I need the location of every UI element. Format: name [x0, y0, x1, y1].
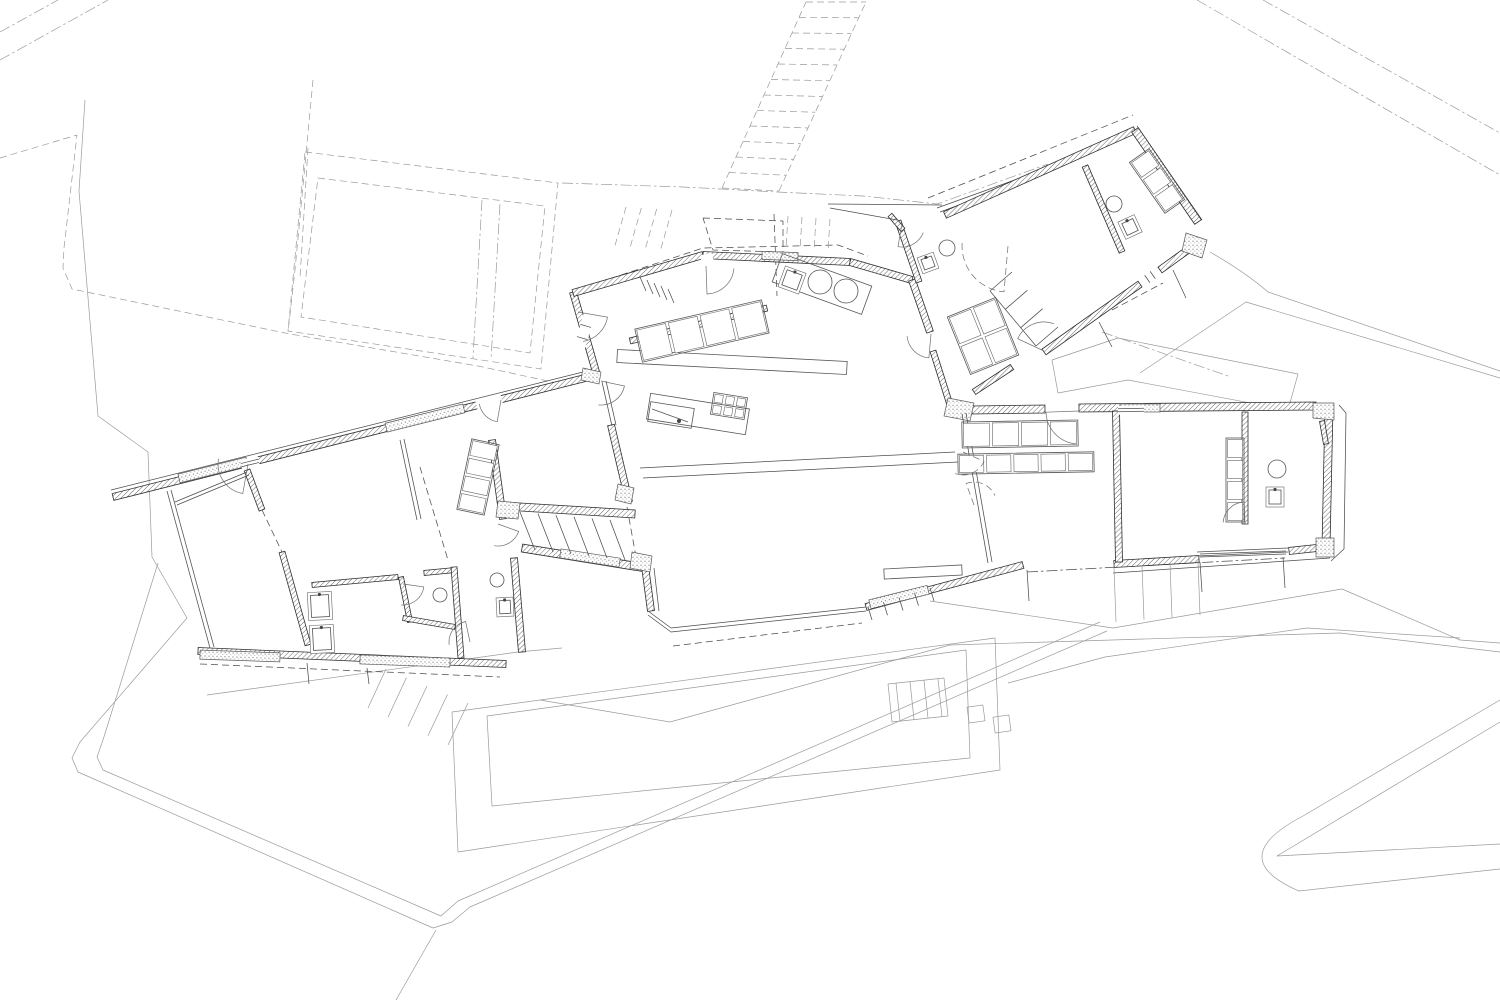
4: [896, 683, 900, 721]
13: [729, 173, 786, 176]
4: [814, 218, 816, 251]
basin: [496, 597, 514, 617]
wc-bowl: [1106, 196, 1122, 212]
basin: [917, 252, 939, 274]
wall-segment: [849, 259, 913, 284]
site-line: [1210, 252, 1500, 371]
4: [938, 679, 942, 717]
wall-segment: [930, 350, 953, 406]
site-line: [1262, 700, 1500, 891]
4: [924, 680, 928, 718]
cooktop-burner: [808, 270, 832, 294]
roof-line: [1331, 405, 1346, 561]
wall-block: [496, 501, 520, 519]
13: [771, 80, 830, 81]
roof-line: [1173, 270, 1186, 298]
13: [785, 49, 844, 50]
13: [757, 111, 815, 113]
roof-line: [420, 467, 448, 560]
glazing-line: [640, 452, 955, 468]
5: [654, 283, 660, 297]
wall-block: [615, 484, 634, 504]
glazing-line: [828, 204, 942, 205]
wall-segment: [504, 502, 635, 518]
wall-segment: [909, 279, 934, 333]
wall-segment: [312, 575, 398, 588]
site-line: [0, 0, 108, 60]
glazing-line: [404, 439, 421, 519]
glazing-line: [654, 568, 659, 611]
wall-block: [1313, 403, 1334, 420]
13: [792, 33, 852, 34]
site-line: [1140, 302, 1500, 378]
door-swing: [494, 524, 519, 546]
door-swing: [907, 334, 931, 358]
wall-block: [360, 655, 450, 667]
wall-segment: [572, 252, 704, 297]
roof-line: [673, 623, 862, 646]
wall-block: [560, 549, 621, 567]
wall-opening: [475, 394, 503, 410]
site-line: [1102, 332, 1228, 376]
4: [645, 209, 657, 251]
roof-line: [1027, 570, 1029, 601]
wc-bowl: [433, 588, 447, 602]
wc-bowl: [490, 573, 504, 587]
wall-segment: [1079, 402, 1316, 412]
6: [538, 514, 553, 552]
wall-segment: [244, 469, 265, 511]
wall-segment: [972, 405, 1045, 414]
site-line: [396, 930, 436, 1000]
4: [1142, 566, 1144, 620]
window: [1118, 405, 1144, 414]
site-line: [491, 204, 500, 360]
5: [448, 703, 468, 745]
wall-block: [1316, 538, 1334, 557]
site-line: [1277, 722, 1500, 856]
roof-line: [928, 115, 1133, 198]
windows-layer: [240, 253, 1286, 560]
site-line: [301, 178, 545, 353]
site-line: [993, 715, 1011, 733]
wall-block: [385, 404, 465, 432]
fixture: [652, 409, 688, 422]
basin: [1266, 487, 1284, 507]
site-line: [0, 0, 58, 32]
wall-block: [762, 251, 798, 260]
4: [1114, 568, 1116, 622]
wall-segment: [424, 568, 455, 576]
island-table: [648, 402, 695, 429]
5: [640, 277, 646, 291]
6: [574, 517, 589, 556]
site-line: [97, 563, 1100, 916]
site-line: [1052, 338, 1298, 410]
wall-segment: [1082, 165, 1125, 253]
basin: [307, 591, 332, 620]
utility-appliances: [947, 298, 1018, 375]
wall-segment: [403, 616, 456, 630]
roof-line: [111, 369, 595, 490]
fixture: [677, 419, 681, 423]
wall-block: [869, 585, 929, 608]
4: [614, 207, 626, 249]
wc-bowl: [939, 240, 955, 256]
door-swing: [966, 482, 995, 505]
wall-segment: [1113, 411, 1123, 562]
wall-segment: [279, 551, 311, 646]
glazing-line: [171, 490, 214, 647]
5: [408, 686, 427, 727]
wc-bowl: [1268, 460, 1286, 478]
planter: [884, 565, 962, 579]
closet-row: [958, 452, 1094, 474]
wall-segment: [451, 567, 464, 658]
kitchen-cabinets: [635, 300, 769, 362]
wall-block: [178, 457, 248, 483]
glazing-line: [400, 440, 417, 520]
glazing-line: [830, 208, 897, 220]
5: [647, 280, 653, 294]
13: [750, 126, 808, 128]
roof-line: [262, 510, 282, 552]
floor-plan-page: [0, 0, 1500, 1000]
site-line: [540, 633, 1500, 722]
13: [722, 188, 779, 191]
wall-segment: [1242, 412, 1248, 524]
5: [368, 669, 386, 708]
floor-plan-canvas: [0, 0, 1500, 1000]
closet-row: [962, 420, 1078, 448]
door-swing: [962, 242, 1008, 292]
13: [743, 142, 801, 144]
4: [1005, 290, 1027, 309]
4: [1198, 561, 1200, 615]
basin: [1118, 215, 1142, 240]
site-line: [0, 135, 562, 384]
wall-segment: [888, 213, 905, 231]
site-line: [300, 148, 308, 278]
roof-line: [367, 668, 369, 684]
wall-segment: [642, 566, 655, 612]
door-swing: [706, 266, 734, 294]
glazing-line: [643, 462, 958, 478]
4: [786, 216, 788, 249]
site-line: [487, 650, 970, 806]
site-line: [473, 200, 482, 358]
wall-segment: [1114, 556, 1199, 568]
4: [910, 682, 914, 720]
site-line: [288, 80, 313, 332]
kitchen-sink: [778, 266, 806, 294]
13: [764, 95, 823, 97]
6: [610, 520, 625, 560]
wall-block: [944, 398, 974, 421]
site-line: [452, 638, 1000, 852]
glazing-line: [648, 611, 866, 632]
wall-block: [630, 552, 652, 572]
4: [1170, 563, 1172, 617]
glazing-line: [648, 607, 866, 628]
wardrobe: [457, 439, 499, 515]
glazing-line: [167, 491, 210, 648]
5: [388, 678, 407, 718]
6: [592, 518, 607, 558]
5: [661, 286, 667, 300]
4: [990, 272, 1012, 291]
site-line: [1263, 0, 1500, 133]
window: [1139, 268, 1161, 287]
4: [629, 208, 641, 250]
13: [736, 157, 794, 160]
basin: [309, 624, 334, 653]
site-line: [967, 705, 985, 723]
5: [428, 695, 448, 736]
cooktop-burner: [834, 279, 858, 303]
roof-line: [1283, 557, 1285, 588]
4: [800, 217, 802, 250]
site-line: [1197, 0, 1500, 175]
4: [660, 210, 672, 252]
6: [556, 515, 571, 554]
wall-blocks-layer: [178, 233, 1334, 667]
wall-segment: [1042, 281, 1142, 355]
stair: [888, 678, 948, 722]
4: [828, 219, 830, 252]
wall-segment: [944, 127, 1137, 218]
5: [668, 289, 674, 303]
13: [778, 64, 837, 65]
